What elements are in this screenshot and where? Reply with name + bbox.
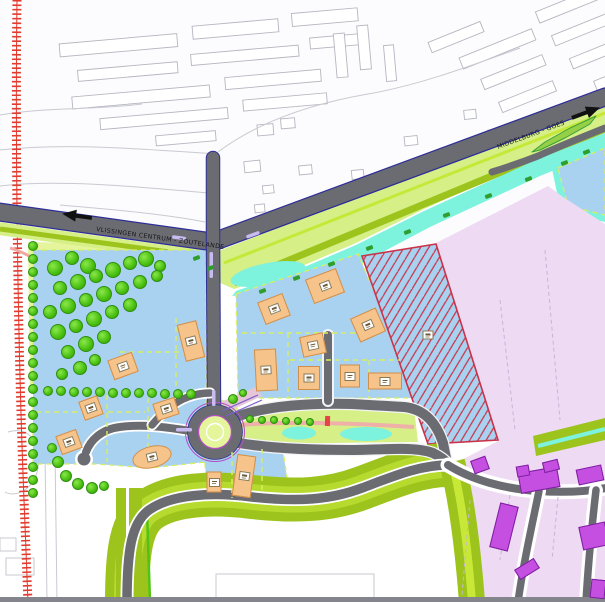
frame-bottom-edge (0, 597, 605, 602)
development-plan-map: VLISSINGEN CENTRUM - ZOUTELANDE MIDDELBU… (0, 0, 605, 602)
crossing-mark (325, 416, 330, 426)
plan-drawing: VLISSINGEN CENTRUM - ZOUTELANDE MIDDELBU… (0, 0, 605, 602)
north-access-road (213, 158, 214, 406)
